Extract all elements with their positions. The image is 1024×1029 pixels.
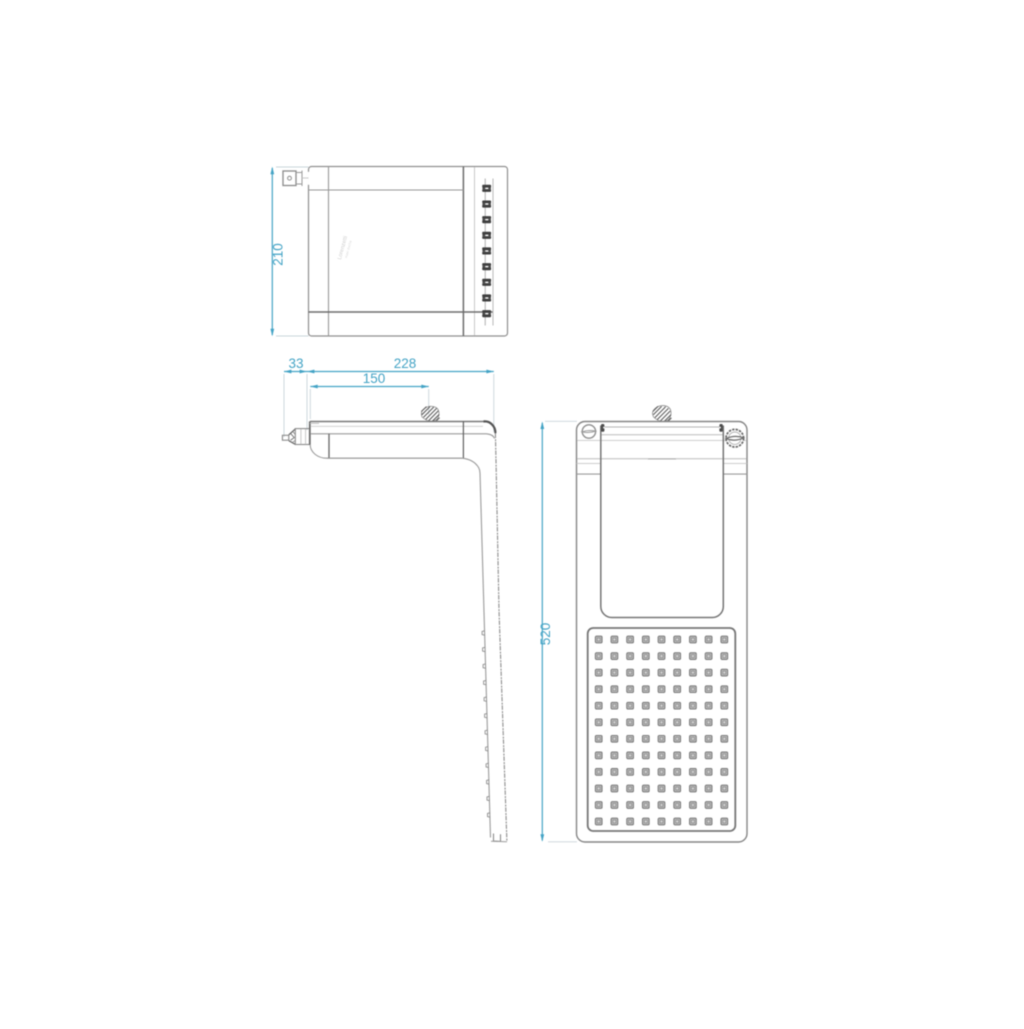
svg-text:33: 33 [288,356,303,371]
svg-text:520: 520 [538,623,553,646]
svg-text:210: 210 [271,243,286,266]
svg-text:150: 150 [363,371,386,386]
svg-text:228: 228 [394,356,417,371]
